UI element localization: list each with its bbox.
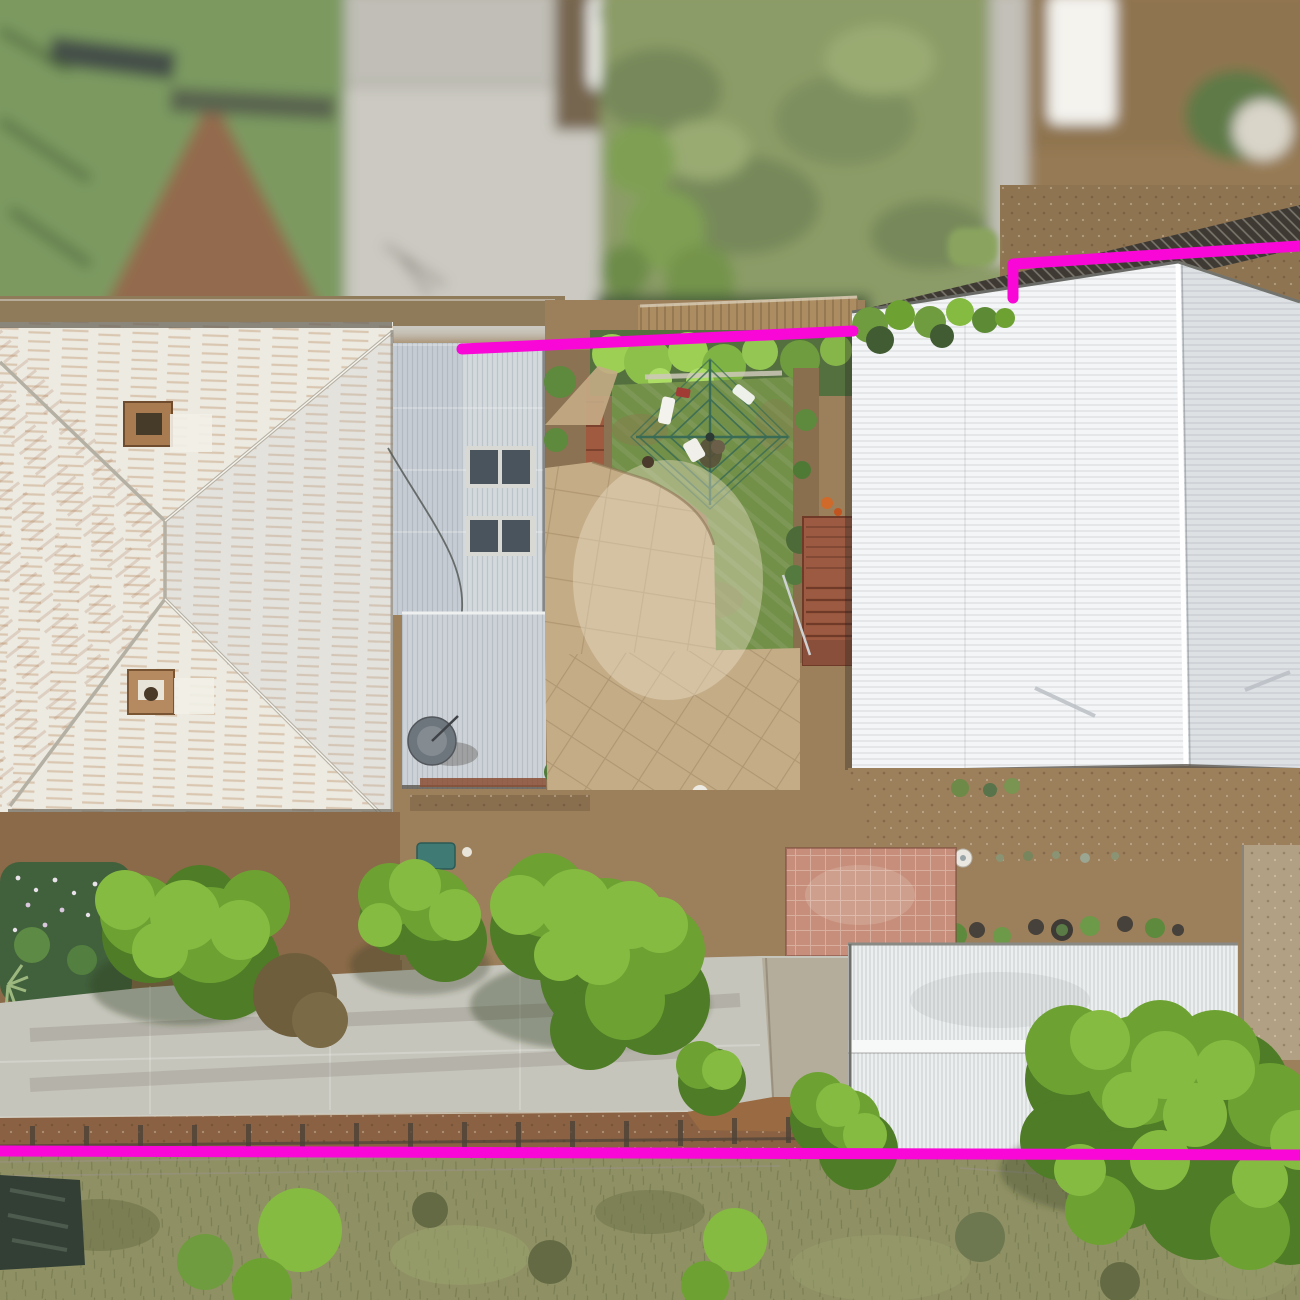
main-house-roof	[0, 322, 393, 816]
drain	[642, 456, 654, 468]
large-shed-roof	[845, 262, 1300, 795]
pink-tiled-patio	[786, 848, 956, 956]
aerial-photo	[0, 0, 1300, 1300]
aerial-photo-canvas	[0, 0, 1300, 1300]
boundary-line-front-boundary-street-side	[0, 1151, 1300, 1155]
